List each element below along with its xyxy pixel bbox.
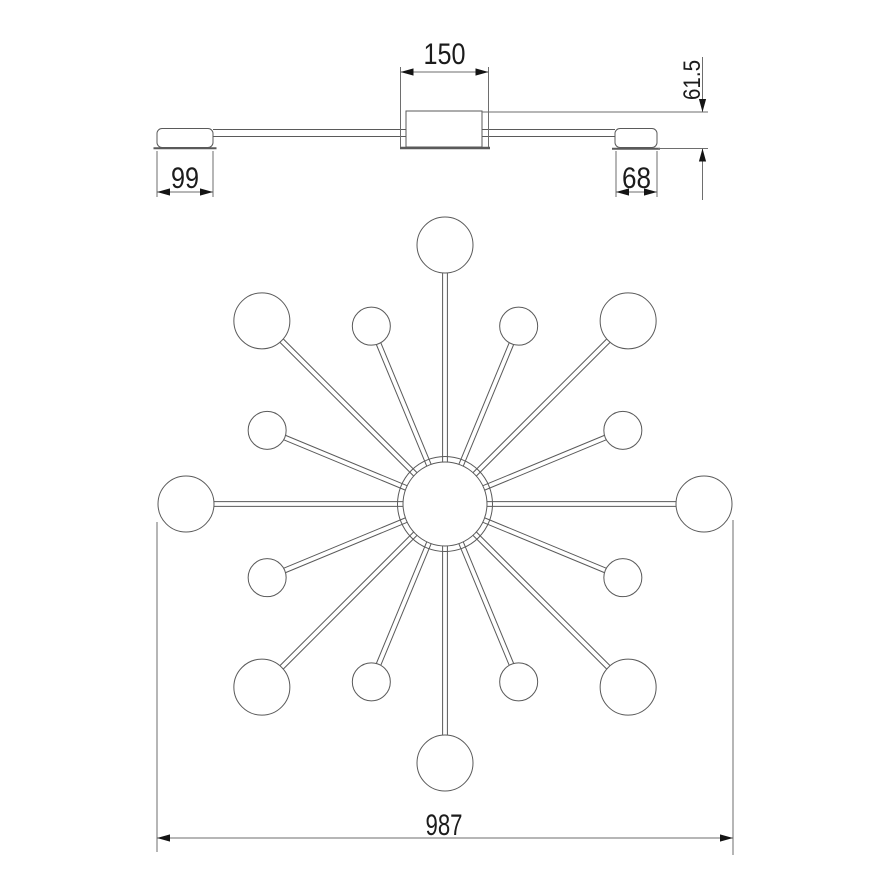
dim-label-fixture-height: 61.5 [679,60,706,100]
canopy-box [406,111,482,147]
lamp-sphere [352,307,390,345]
lamp-sphere [248,559,286,597]
dim-label-left-end-cap: 99 [171,162,199,195]
arm-tube-line [473,535,607,669]
lamp-sphere [417,735,473,791]
lamp-sphere [600,293,656,349]
arm-tube-line [463,542,513,663]
arm-tube-line [463,345,513,466]
arm-tube-line [284,518,405,568]
arm-tube-line [286,435,407,485]
arm-tube-line [483,522,604,572]
fixture-technical-drawing: 150 99 68 61.5 987 [0,0,887,887]
arm-tube-line [283,339,417,473]
dimension-arrow [157,188,170,195]
lamp-sphere [234,293,290,349]
lamp-sphere [352,663,390,701]
arm-tube-line [381,544,431,665]
arm-tube-line [280,342,414,476]
left-end-cap [157,129,213,148]
dimension-arrow [401,68,414,75]
dimension-arrow [699,149,706,162]
arm-tube-line [459,343,509,464]
arm-tube-line [485,518,606,568]
lamp-sphere [676,476,732,532]
hub-inner-circle [403,462,487,546]
arm-tube-line [476,532,610,666]
dimension-arrow [476,68,489,75]
dimension-arrow [157,834,170,841]
dim-label-canopy-width: 150 [424,38,466,71]
arm-tube-line [381,343,431,464]
lamp-sphere [158,476,214,532]
dim-label-overall-width: 987 [426,809,463,842]
dimension-arrow [720,834,733,841]
arm-tube-line [376,542,426,663]
lamp-sphere [604,559,642,597]
dimension-arrow [200,188,213,195]
right-end-cap [615,129,657,148]
lamp-sphere [500,663,538,701]
arm-tube-line [283,535,417,669]
arm-tube-line [473,339,607,473]
lamp-sphere [234,659,290,715]
plan-view-starburst [158,217,732,791]
arm-tube-line [459,544,509,665]
drawing-canvas: 150 99 68 61.5 987 [0,0,887,887]
arm-tube-line [376,345,426,466]
side-view-elevation [154,111,661,149]
dim-label-right-end-cap: 68 [622,162,651,195]
lamp-sphere [417,217,473,273]
lamp-sphere [500,307,538,345]
arm-tube-line [483,435,604,485]
arm-tube-line [284,440,405,490]
arm-tube-line [280,532,414,666]
arm-tube-line [476,342,610,476]
arm-tube-line [286,522,407,572]
arm-tube-line [485,440,606,490]
lamp-sphere [600,659,656,715]
lamp-sphere [604,411,642,449]
lamp-sphere [248,411,286,449]
